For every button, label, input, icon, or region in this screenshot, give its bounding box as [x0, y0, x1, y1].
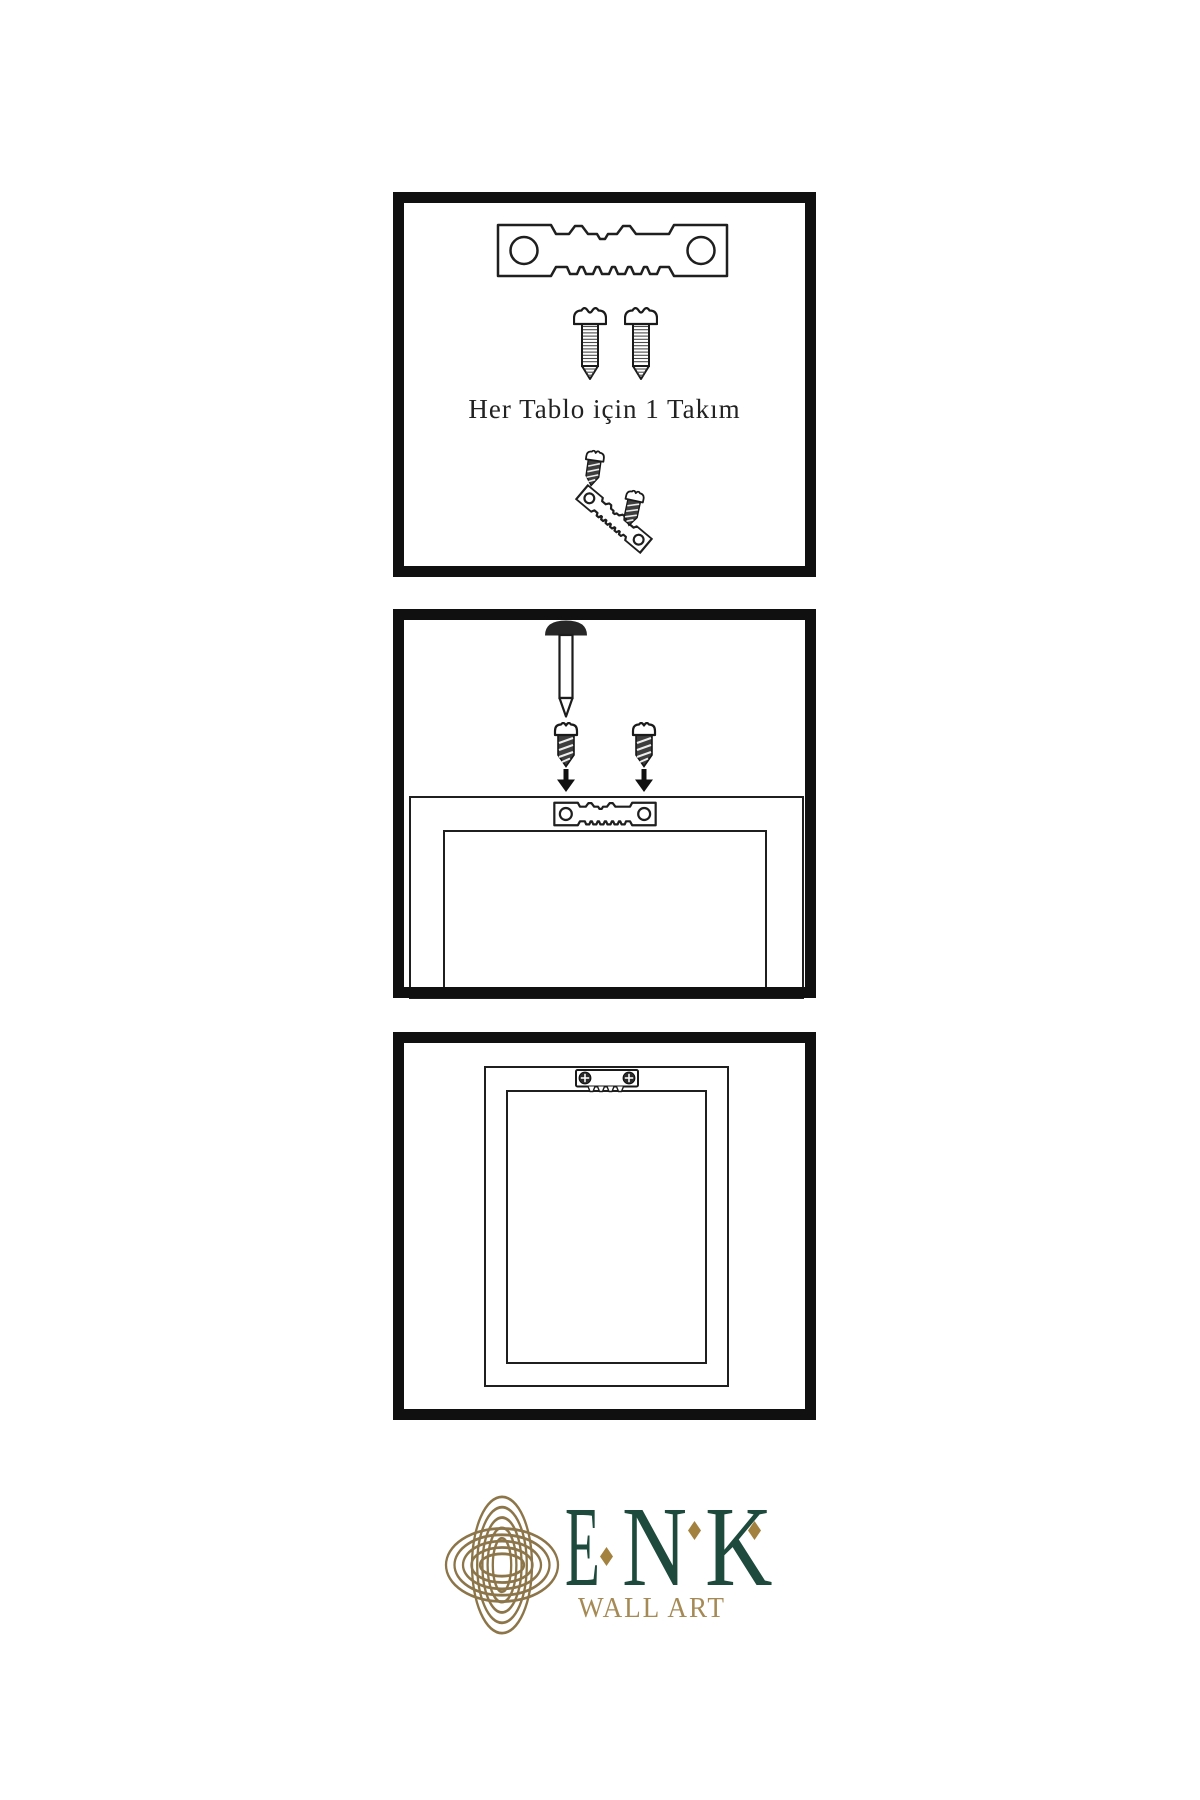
logo-letter-k: K — [705, 1490, 773, 1604]
instruction-sheet: Her Tablo için 1 Takım — [0, 0, 1200, 1800]
knot-logo-icon — [442, 1492, 562, 1638]
logo-diamond-icon — [688, 1521, 701, 1540]
logo-letter-e: E — [565, 1490, 600, 1604]
panel-mounting — [393, 609, 816, 998]
panel-hung-frame — [393, 1032, 816, 1420]
panel-parts — [393, 192, 816, 577]
logo-diamond-icon — [600, 1547, 613, 1566]
logo-letter-n: N — [622, 1490, 687, 1604]
logo-subtitle: WALL ART — [578, 1593, 726, 1625]
